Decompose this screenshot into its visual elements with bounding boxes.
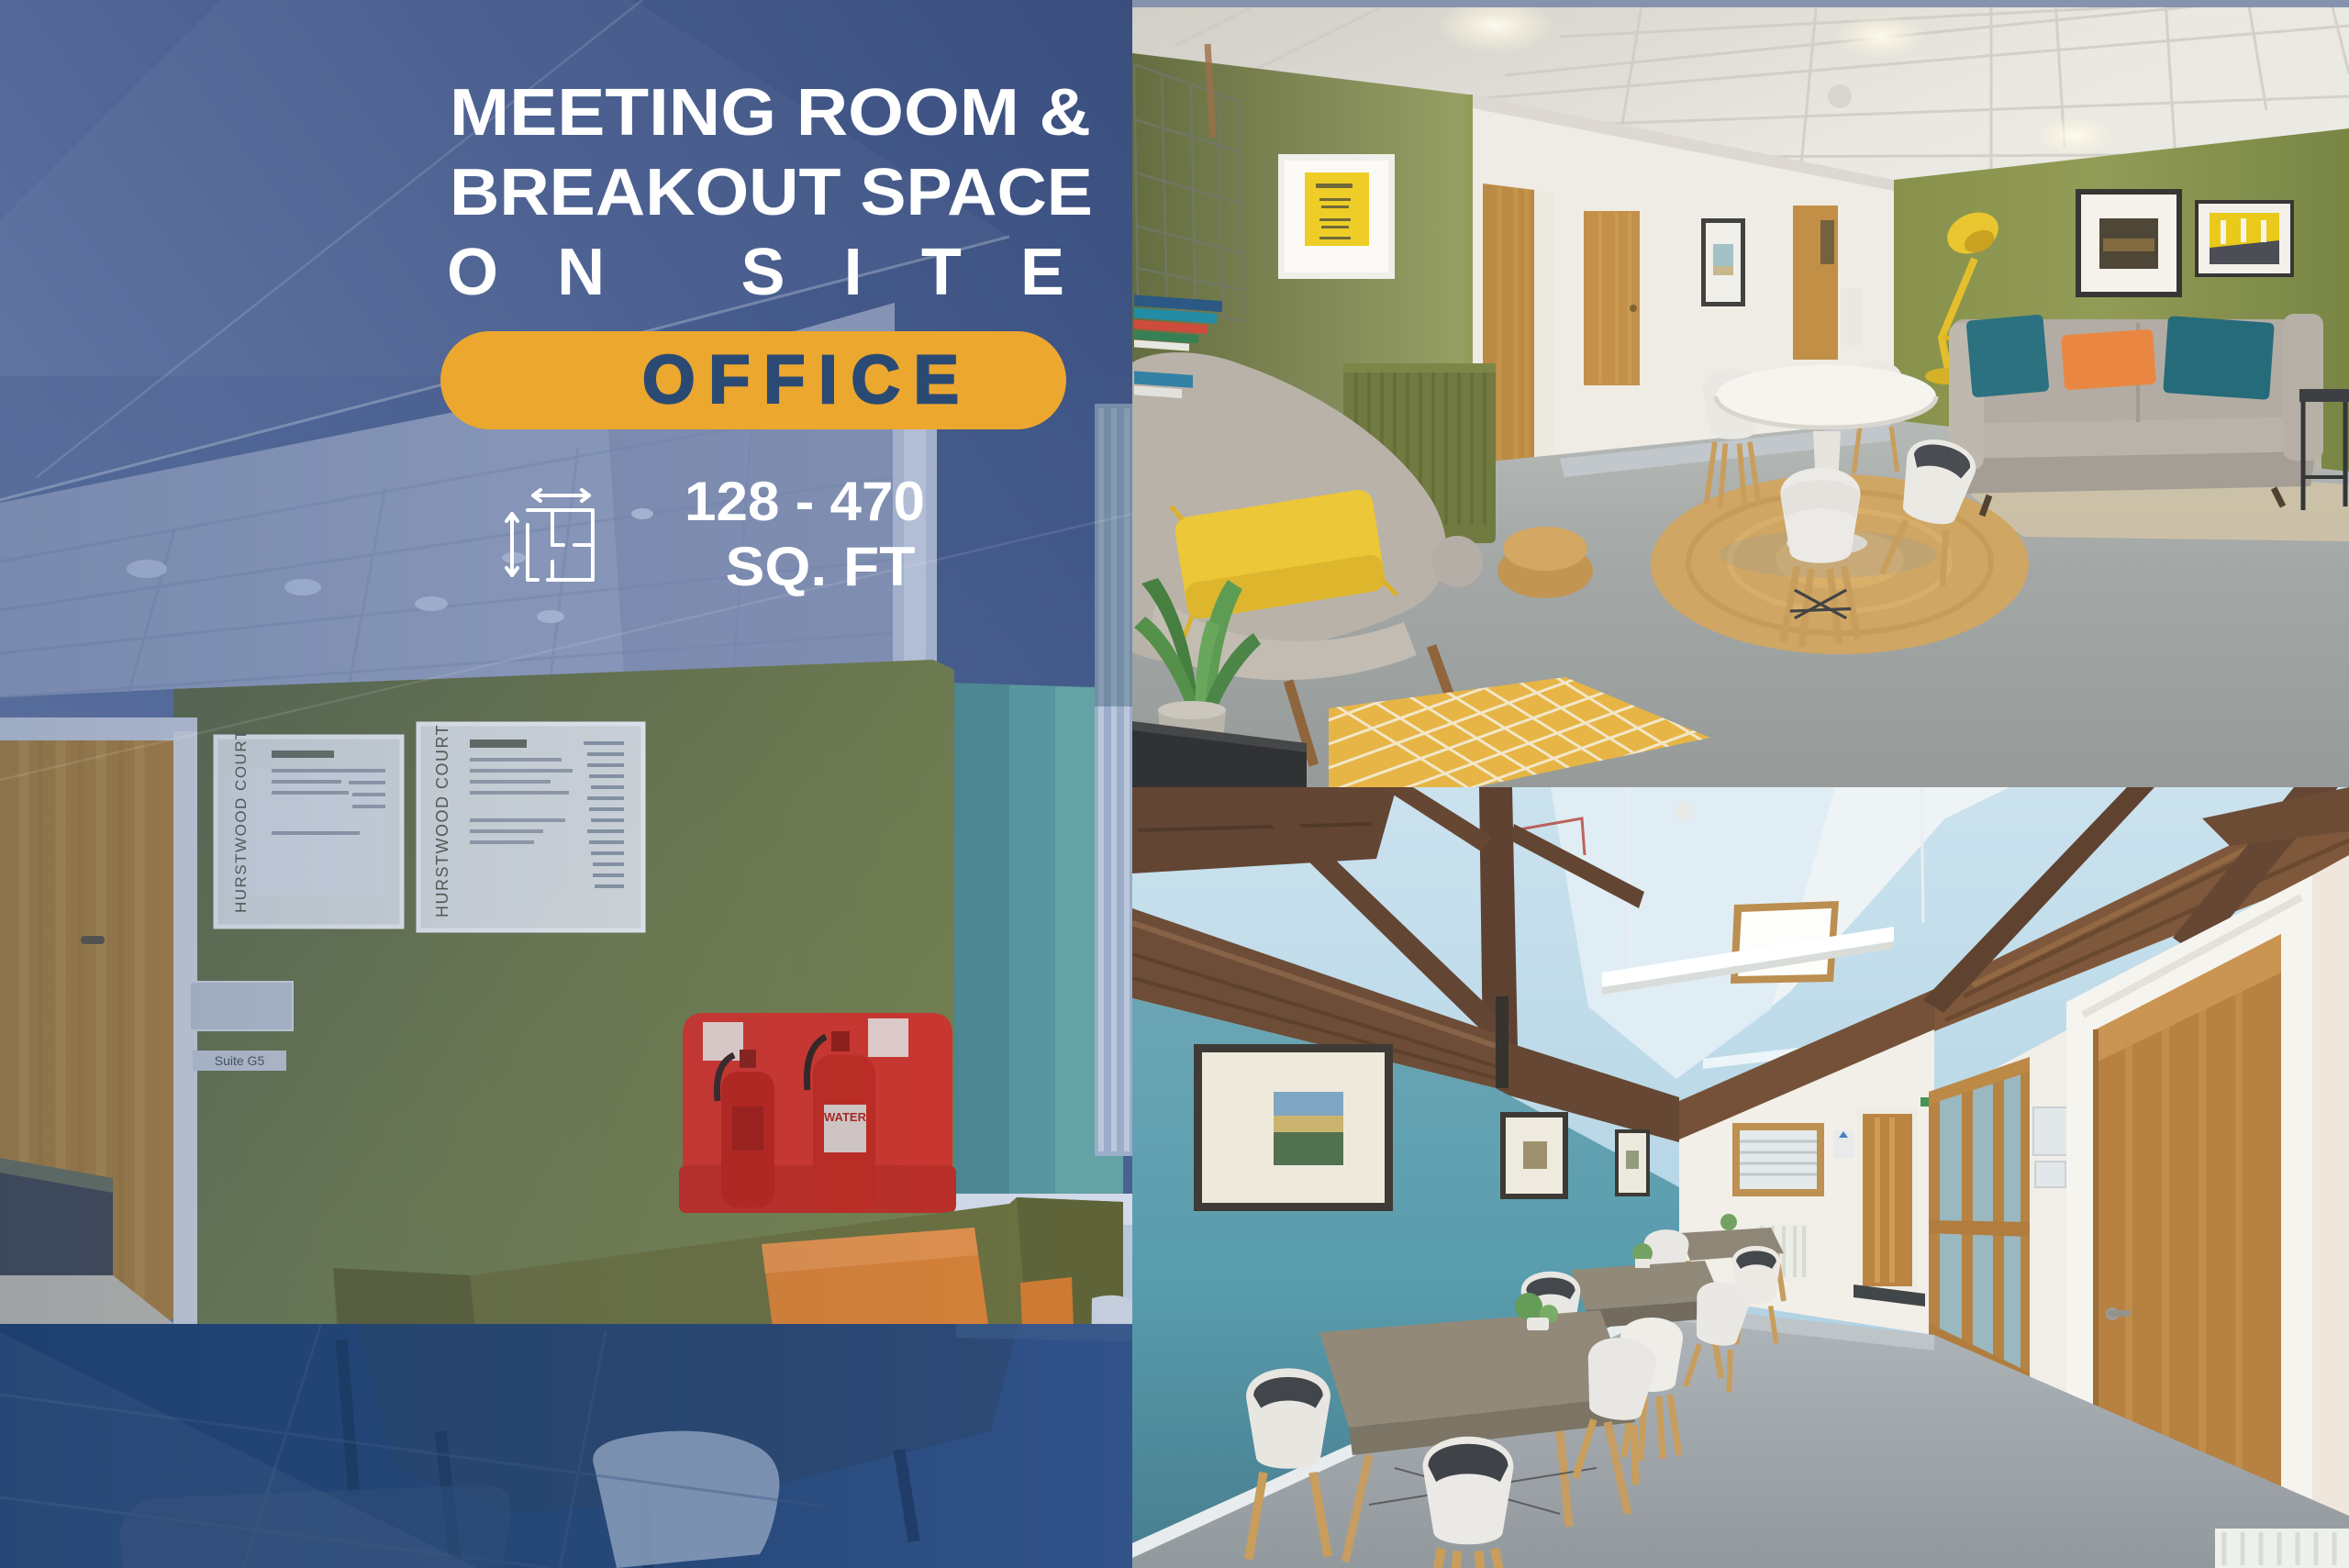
svg-text:128 - 470: 128 - 470 [685,471,925,532]
svg-text:BREAKOUT SPACE: BREAKOUT SPACE [450,156,1093,229]
svg-text:SQ. FT: SQ. FT [726,536,916,597]
svg-text:MEETING ROOM &: MEETING ROOM & [450,76,1091,150]
